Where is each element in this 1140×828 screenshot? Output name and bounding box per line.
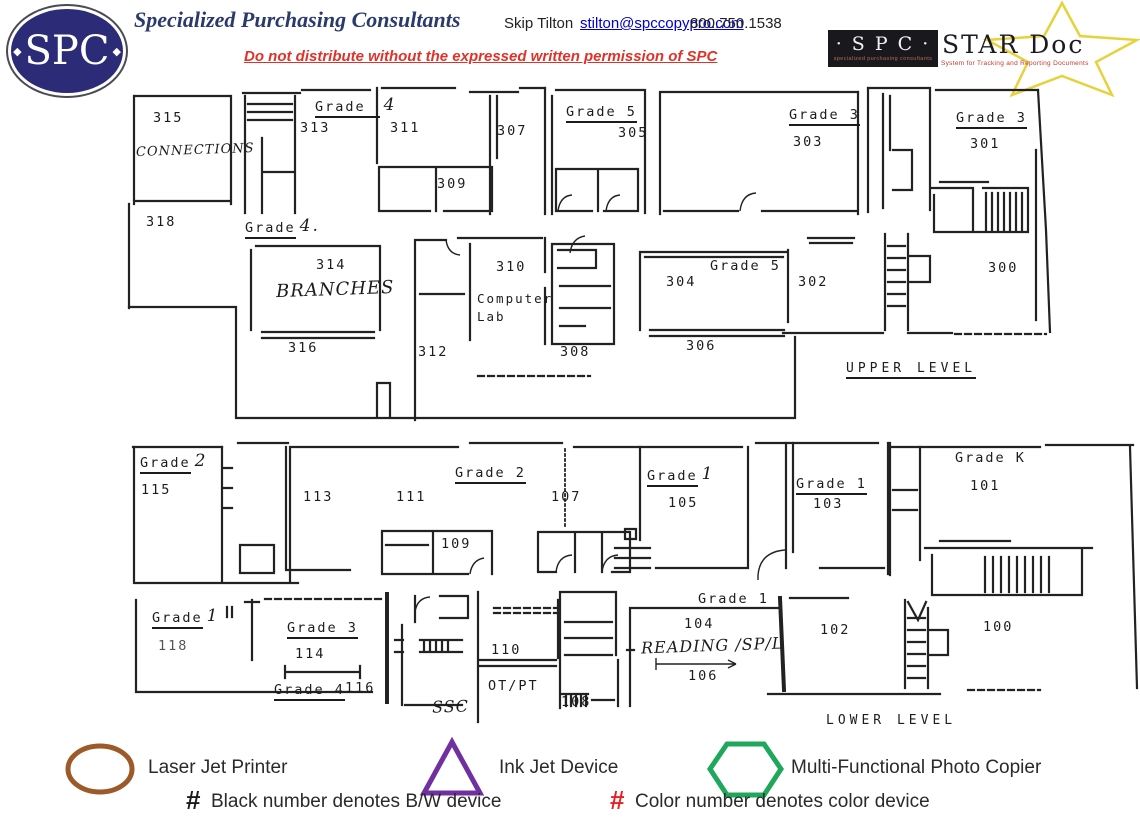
label-reading-spl: READING /SP/L [641,634,784,658]
label-room-116: 116 [345,680,375,696]
label-room-309: 309 [437,176,467,192]
label-room-313: 313 [300,120,330,136]
label-room-107: 107 [551,489,581,505]
label-room-312: 312 [418,344,448,360]
stardoc-subtitle: System for Tracking and Reporting Docume… [941,60,1089,67]
label-grade-116: Grade 4 [274,682,345,701]
label-room-103: 103 [813,496,843,512]
label-grade-301: Grade 3 [956,110,1027,129]
legend-color-note: Color number denotes color device [635,791,930,813]
label-room-113: 113 [303,489,333,505]
contact-name: Skip Tilton [504,15,573,32]
legend-copier-label: Multi-Functional Photo Copier [791,757,1041,779]
label-grade-313-word: Grade [315,99,380,118]
label-room-104: 104 [684,616,714,632]
label-room-305: 305 [618,125,648,141]
label-room-118: 118 [158,638,188,654]
label-room-306: 306 [686,338,716,354]
label-room-308: 308 [560,344,590,360]
label-room-110: 110 [491,642,521,658]
label-grade-105-word: Grade [647,468,698,487]
stardoc-name: STAR Doc [942,30,1084,59]
label-grade-105-num: 1 [702,464,715,484]
legend-bw-note: Black number denotes B/W device [211,791,501,813]
label-grade-107: Grade 2 [455,465,526,484]
label-room-304: 304 [666,274,696,290]
label-branches: BRANCHES [276,277,395,302]
label-ssc: SSC [432,696,470,716]
label-room-302: 302 [798,274,828,290]
label-room-303: 303 [793,134,823,150]
label-room-318: 318 [146,214,176,230]
stardoc-spc-text: · S P C · [836,35,931,54]
label-room-115: 115 [141,482,171,498]
floor-plan-labels: 315 CONNECTIONS Grade 4 313 311 309 307 … [0,0,1140,828]
label-otpt: OT/PT [488,678,539,694]
label-grade-118-num: 1 [207,606,220,626]
company-title: Specialized Purchasing Consultants [134,7,460,33]
stardoc-spc-badge: · S P C · specialized purchasing consult… [828,30,938,67]
label-room-106: 106 [688,668,718,684]
contact-phone: 800.750.1538 [690,15,782,32]
label-lower-level: LOWER LEVEL [826,713,956,728]
label-room-314: 314 [316,257,346,273]
red-hash-icon: # [610,785,624,816]
label-grade-314-word: Grade [245,220,296,239]
label-grade-313-num: 4 [384,95,397,115]
label-room-100: 100 [983,619,1013,635]
label-room-109: 109 [441,536,471,552]
label-grade-314-num: 4. [300,216,320,236]
label-room-114: 114 [295,646,325,662]
label-room-307: 307 [497,123,527,139]
label-grade-115-word: Grade [140,455,191,474]
legend-inkjet-label: Ink Jet Device [499,757,618,779]
label-connections: CONNECTIONS [136,141,255,160]
spc-logo: ◆ SPC ◆ [8,6,126,96]
label-room-316: 316 [288,340,318,356]
black-hash-icon: # [186,785,200,816]
label-grade-101: Grade K [955,450,1026,466]
page-header: ◆ SPC ◆ Specialized Purchasing Consultan… [0,0,1140,90]
label-room-102: 102 [820,622,850,638]
distribution-warning: Do not distribute without the expressed … [244,48,717,65]
label-room-105: 105 [668,495,698,511]
label-room-301: 301 [970,136,1000,152]
label-room-315: 315 [153,110,183,126]
label-room-101: 101 [970,478,1000,494]
label-grade-115-num: 2 [195,451,208,471]
label-room-311: 311 [390,120,420,136]
label-upper-level: UPPER LEVEL [846,361,976,379]
label-grade-304: Grade 5 [710,258,781,274]
label-computer-lab: Computer Lab [477,290,569,326]
label-grade-118-word: Grade [152,610,203,629]
label-grade-303: Grade 3 [789,107,860,126]
label-grade-104: Grade 1 [698,591,769,607]
logo-text: SPC [25,31,110,71]
label-grade-103: Grade 1 [796,476,867,495]
label-room-300: 300 [988,260,1018,276]
label-room-111: 111 [396,489,426,505]
legend-laser-label: Laser Jet Printer [148,757,287,779]
logo-right-diamond-icon: ◆ [112,45,120,58]
label-grade-305: Grade 5 [566,104,637,123]
label-grade-114: Grade 3 [287,620,358,639]
stardoc-spc-tagline: specialized purchasing consultants [834,56,933,62]
label-room-108: 108 [561,694,591,710]
label-room-310: 310 [496,259,526,275]
logo-left-diamond-icon: ◆ [13,45,21,58]
